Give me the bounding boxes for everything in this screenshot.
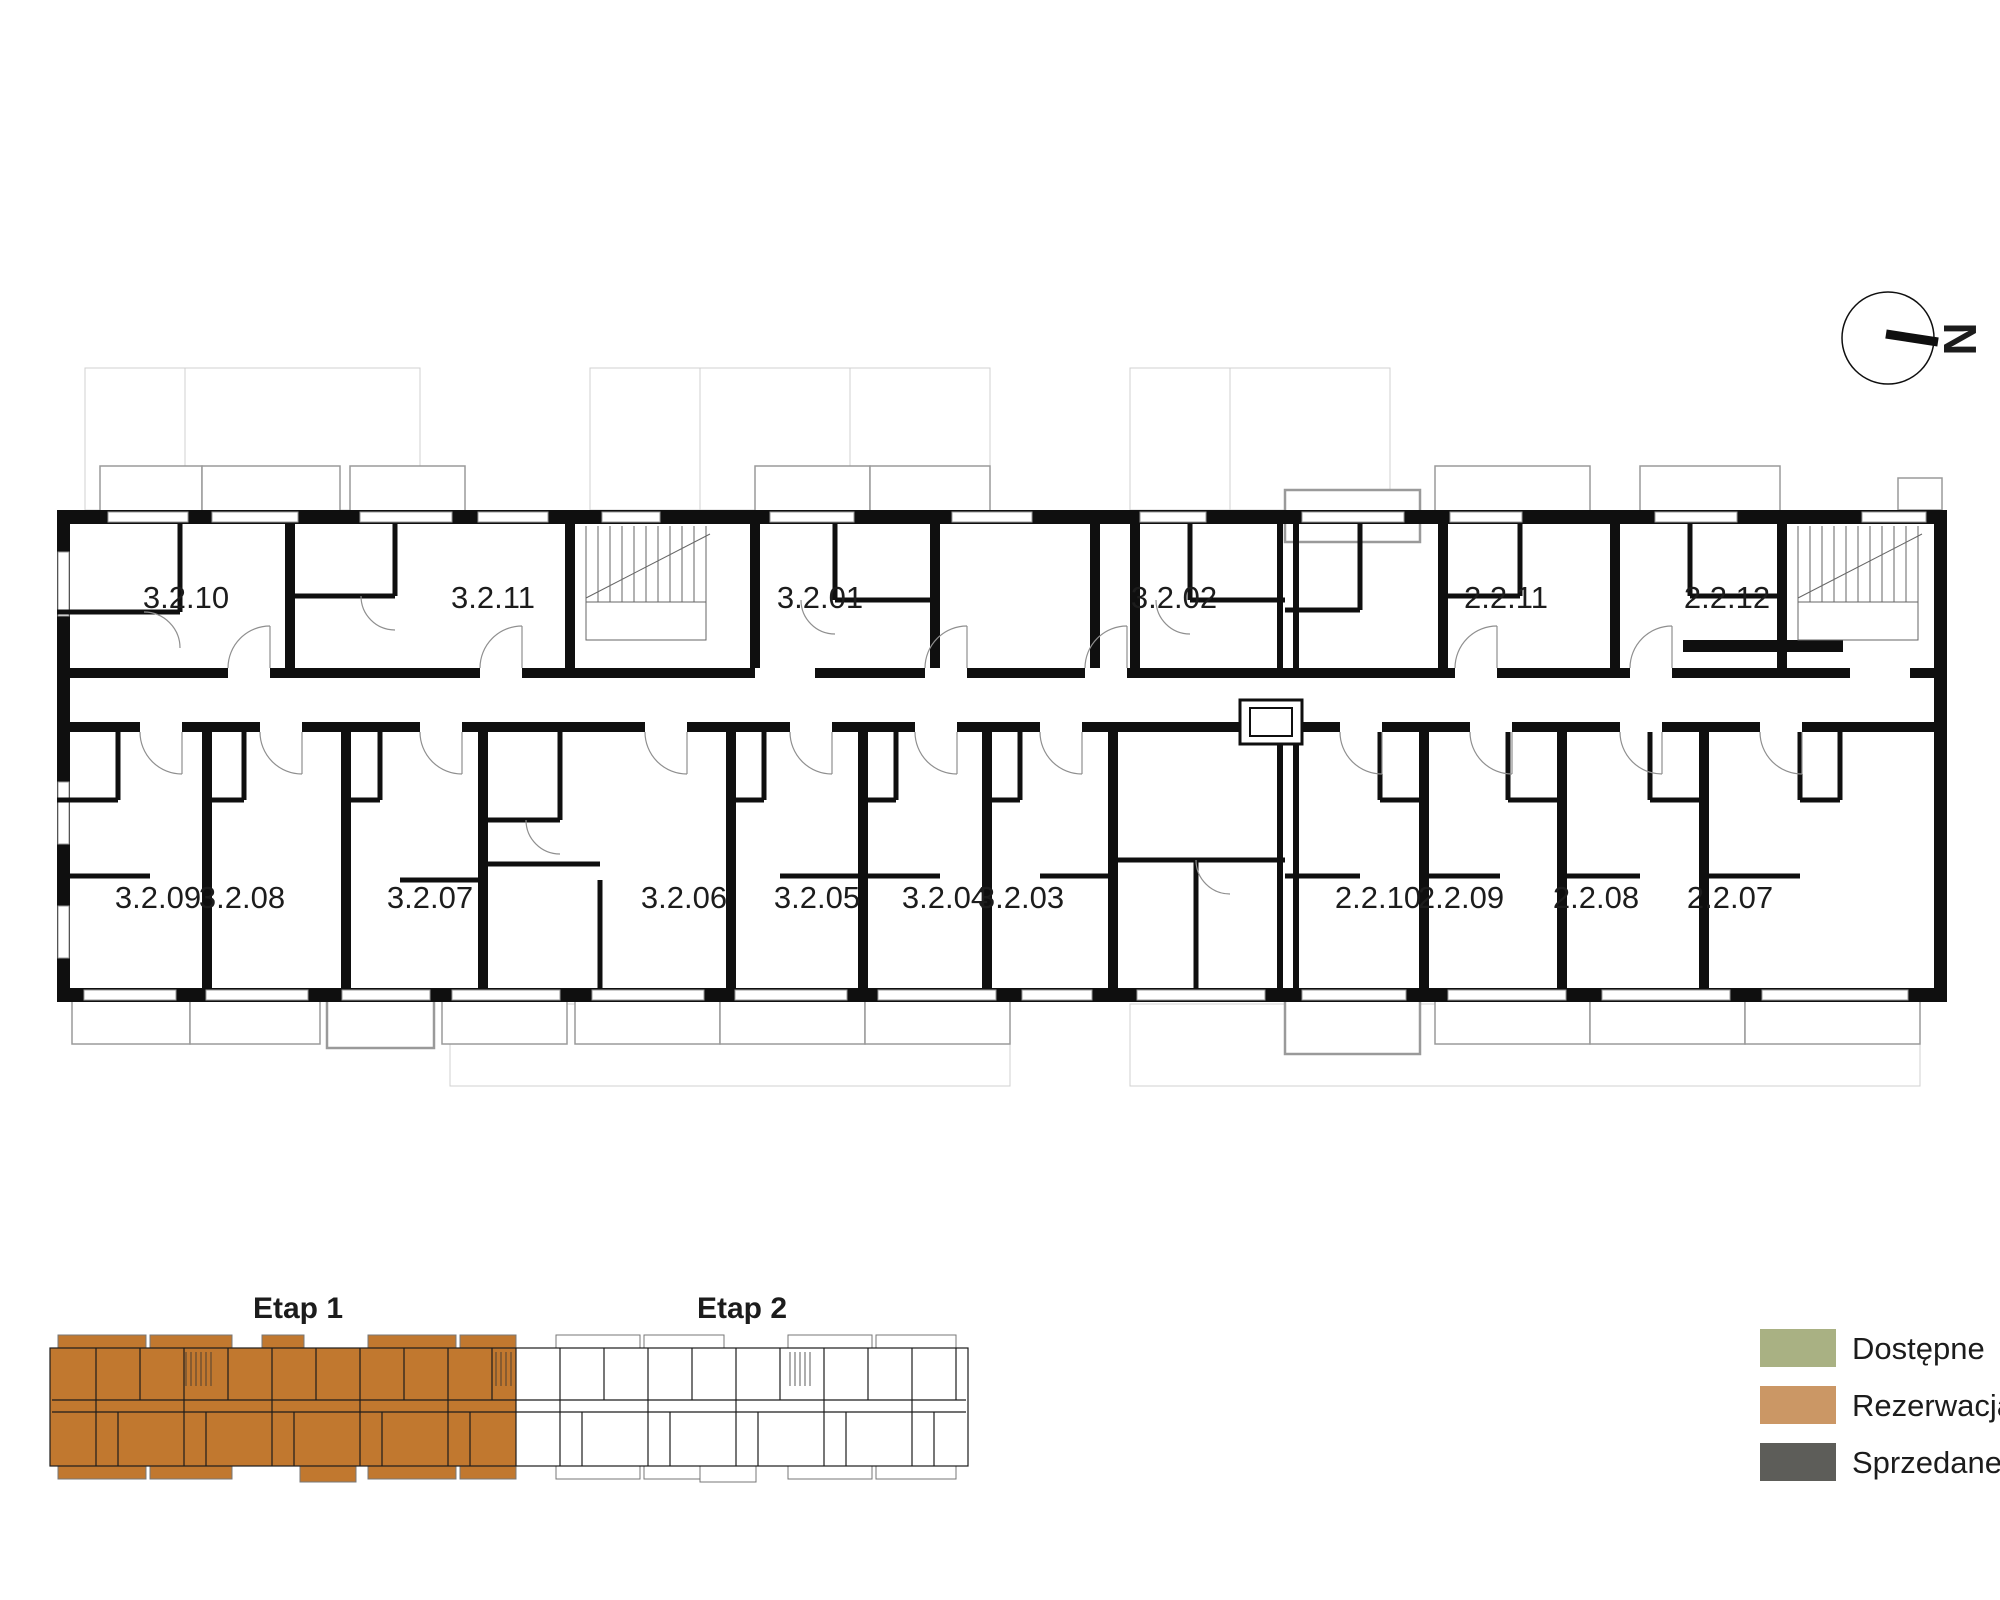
unit-3-2-10[interactable]: 3.2.10: [143, 580, 229, 615]
unit-2-2-08[interactable]: 2.2.08: [1553, 880, 1639, 915]
unit-3-2-01[interactable]: 3.2.01: [777, 580, 863, 615]
interior-walls: [57, 524, 1843, 988]
legend-swatch-available: [1760, 1329, 1836, 1367]
floor-plan-svg: 3.2.10 3.2.11 3.2.01 3.2.02 2.2.11 2.2.1…: [0, 0, 2000, 1600]
unit-3-2-11[interactable]: 3.2.11: [451, 580, 535, 615]
compass-needle-icon: [1886, 334, 1938, 342]
minimap-etap1-label: Etap 1: [253, 1292, 343, 1325]
stairwell-left-icon: [586, 526, 710, 640]
unit-2-2-07[interactable]: 2.2.07: [1687, 880, 1773, 915]
corridor-walls: [70, 668, 1934, 732]
unit-divider-walls: [202, 524, 1787, 988]
status-legend: Dostępne Rezerwacja Sprzedane: [1760, 1329, 2000, 1481]
stairwell-right-icon: [1798, 526, 1922, 640]
unit-3-2-06[interactable]: 3.2.06: [641, 880, 727, 915]
unit-labels: 3.2.10 3.2.11 3.2.01 3.2.02 2.2.11 2.2.1…: [115, 580, 1773, 915]
building-minimap: Etap 1 Etap 2: [50, 1292, 968, 1482]
doors: [140, 596, 1802, 894]
floor-plan-page: 3.2.10 3.2.11 3.2.01 3.2.02 2.2.11 2.2.1…: [0, 0, 2000, 1600]
unit-3-2-04[interactable]: 3.2.04: [902, 880, 988, 915]
unit-3-2-02[interactable]: 3.2.02: [1131, 580, 1217, 615]
legend-label-reserved: Rezerwacja: [1852, 1388, 2000, 1423]
unit-2-2-10[interactable]: 2.2.10: [1335, 880, 1421, 915]
legend-swatch-sold: [1760, 1443, 1836, 1481]
minimap-etap2-region[interactable]: [516, 1348, 968, 1466]
legend-label-sold: Sprzedane: [1852, 1445, 2000, 1480]
minimap-etap1-region[interactable]: [50, 1348, 516, 1466]
unit-3-2-09[interactable]: 3.2.09: [115, 880, 201, 915]
outer-walls: [57, 510, 1947, 1002]
unit-3-2-03[interactable]: 3.2.03: [978, 880, 1064, 915]
unit-2-2-09[interactable]: 2.2.09: [1418, 880, 1504, 915]
unit-2-2-12[interactable]: 2.2.12: [1684, 580, 1770, 615]
unit-3-2-07[interactable]: 3.2.07: [387, 880, 473, 915]
unit-3-2-05[interactable]: 3.2.05: [774, 880, 860, 915]
minimap-etap2-label: Etap 2: [697, 1292, 787, 1325]
legend-swatch-reserved: [1760, 1386, 1836, 1424]
expansion-joint: [1240, 700, 1302, 744]
legend-label-available: Dostępne: [1852, 1331, 1985, 1366]
unit-2-2-11[interactable]: 2.2.11: [1464, 580, 1548, 615]
compass-north-label: N: [1934, 322, 1986, 355]
unit-3-2-08[interactable]: 3.2.08: [199, 880, 285, 915]
north-compass: N: [1842, 292, 1986, 384]
